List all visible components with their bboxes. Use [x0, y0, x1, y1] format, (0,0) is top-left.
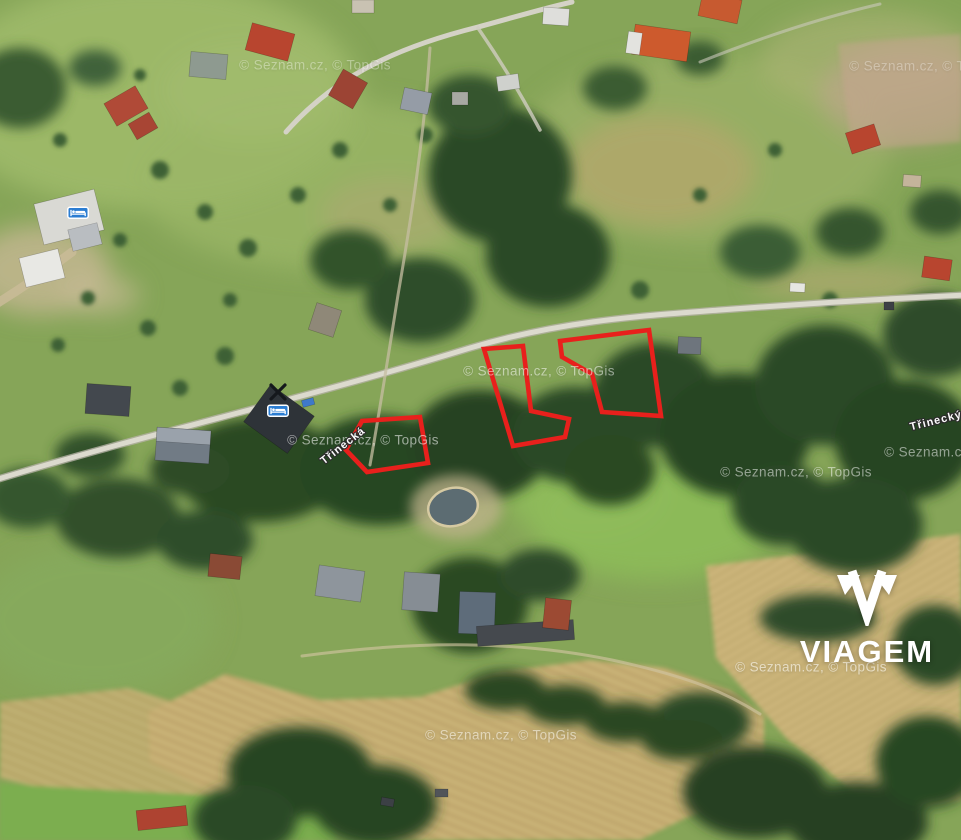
map-attribution-watermark: © Seznam.cz, © TopGis	[425, 728, 577, 743]
map-attribution-watermark: © Seznam.cz, © TopGis	[239, 58, 391, 73]
road-name-label: Třinecká	[318, 425, 367, 467]
accommodation-bed-icon	[267, 405, 289, 418]
viagem-logo-text: VIAGEM	[798, 634, 936, 670]
accommodation-bed-icon	[67, 207, 89, 220]
map-attribution-watermark: © Seznam.cz, © TopGis	[720, 465, 872, 480]
crossed-tools-icon	[268, 383, 288, 401]
map-attribution-watermark: © Seznam.cz, © TopGis	[884, 445, 961, 460]
viagem-gem-icon	[835, 568, 899, 626]
map-attribution-watermark: © Seznam.cz, © TopGis	[849, 59, 961, 74]
map-attribution-watermark: © Seznam.cz, © TopGis	[463, 364, 615, 379]
viagem-watermark: VIAGEM	[798, 568, 936, 670]
road-name-label: Třinecký	[909, 409, 961, 434]
aerial-map-view: © Seznam.cz, © TopGis© Seznam.cz, © TopG…	[0, 0, 961, 840]
map-overlay: © Seznam.cz, © TopGis© Seznam.cz, © TopG…	[0, 0, 961, 840]
